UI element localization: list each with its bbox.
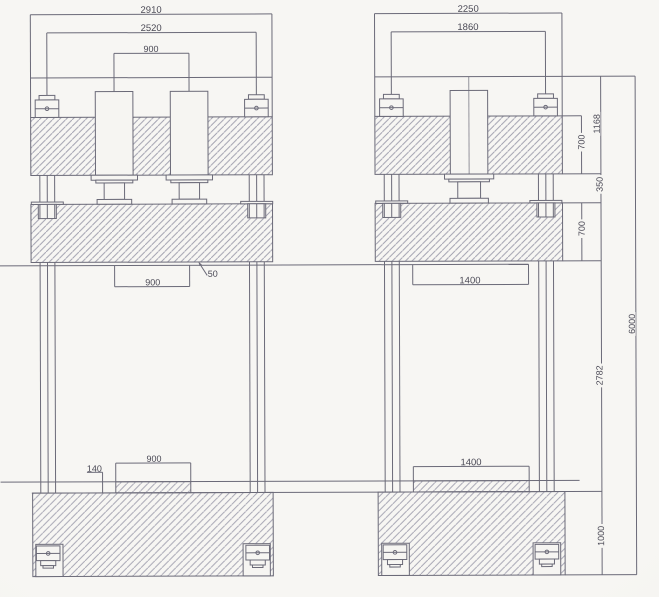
svg-text:900: 900 [145,277,160,287]
svg-text:1168: 1168 [592,114,602,133]
svg-text:900: 900 [143,44,158,54]
svg-text:2782: 2782 [595,365,605,385]
svg-text:50: 50 [208,269,218,279]
svg-text:1400: 1400 [460,457,481,468]
svg-text:2250: 2250 [458,4,479,15]
svg-text:1400: 1400 [459,275,480,286]
svg-text:350: 350 [595,177,605,192]
svg-text:900: 900 [146,454,161,464]
svg-text:1000: 1000 [596,526,606,546]
svg-text:700: 700 [577,221,587,236]
svg-text:2520: 2520 [141,23,162,34]
svg-text:700: 700 [576,135,586,150]
svg-text:2910: 2910 [141,5,162,16]
svg-text:6000: 6000 [627,314,637,334]
svg-text:1860: 1860 [457,22,478,33]
